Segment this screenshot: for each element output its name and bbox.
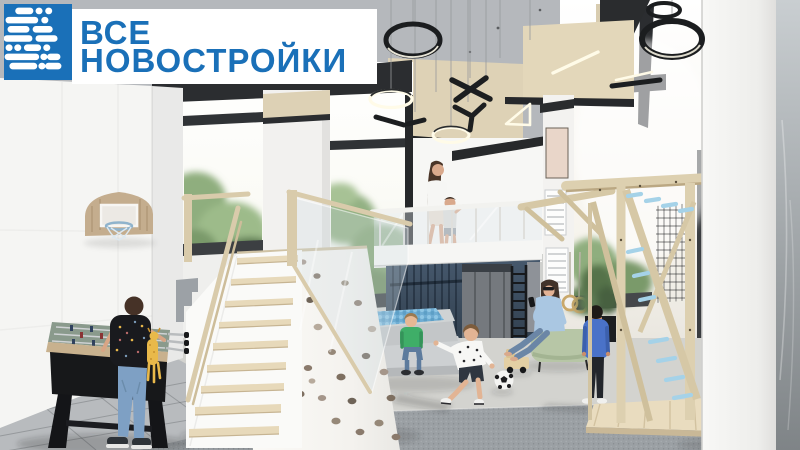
dotted-b-monogram-icon <box>4 4 62 72</box>
white-column-right <box>702 0 800 450</box>
basketball-hoop <box>84 192 156 248</box>
render-viewport: ВСЕ НОВОСТРОЙКИ <box>0 0 800 450</box>
glass-reflective-strip <box>776 0 800 450</box>
brand-logo-icon <box>4 4 72 80</box>
pink-framed-poster <box>546 128 568 178</box>
soccer-ball <box>495 371 514 390</box>
brand-name-line2: НОВОСТРОЙКИ <box>80 47 377 75</box>
brand-logo-wordmark: ВСЕ НОВОСТРОЙКИ <box>72 9 377 84</box>
